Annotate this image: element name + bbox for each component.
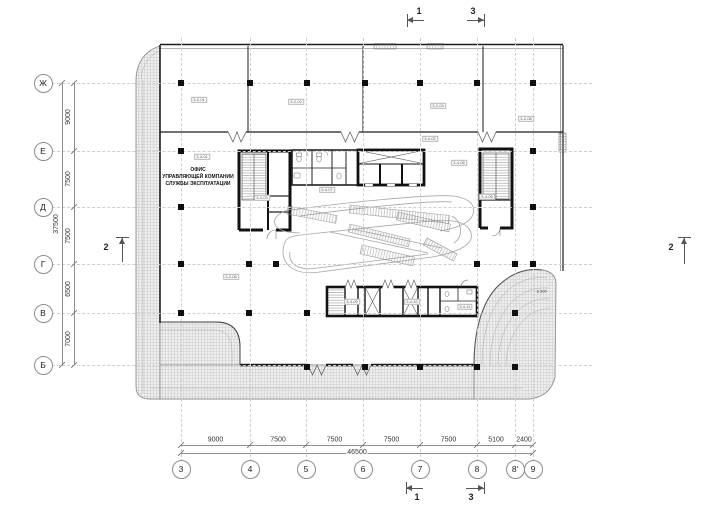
column bbox=[178, 204, 184, 210]
column bbox=[474, 261, 480, 267]
grid-line-col bbox=[181, 38, 182, 462]
dim-value: 7000 bbox=[65, 330, 73, 348]
column bbox=[512, 364, 518, 370]
grid-bubble-row: Ж bbox=[34, 74, 53, 93]
grid-bubble-col: 8 bbox=[468, 460, 487, 479]
dim-value: 9000 bbox=[207, 436, 225, 444]
section-marker-arrow bbox=[478, 485, 484, 491]
column bbox=[247, 80, 253, 86]
dim-value: 9000 bbox=[65, 108, 73, 126]
column bbox=[530, 148, 536, 154]
column bbox=[530, 204, 536, 210]
section-marker-label: 3 bbox=[470, 6, 475, 16]
grid-bubble-row: В bbox=[34, 304, 53, 323]
dim-value: 7500 bbox=[326, 436, 344, 444]
column bbox=[178, 148, 184, 154]
dim-line-bottom bbox=[181, 445, 533, 446]
room-label: 3-4-03 bbox=[254, 195, 270, 201]
grid-line-row bbox=[52, 151, 592, 152]
office-label-line2: УПРАВЛЯЮЩЕЙ КОМПАНИИ bbox=[159, 174, 237, 181]
grid-line-row bbox=[52, 207, 592, 208]
column bbox=[246, 261, 252, 267]
dim-value: 6500 bbox=[65, 280, 73, 298]
dim-value: 7500 bbox=[65, 227, 73, 245]
column bbox=[512, 261, 518, 267]
section-marker-arrow bbox=[478, 17, 484, 23]
section-marker-label: 2 bbox=[103, 242, 108, 252]
elevation-label: -3.300 bbox=[535, 289, 546, 294]
column bbox=[178, 310, 184, 316]
grid-bubble-col: 4 bbox=[241, 460, 260, 479]
column bbox=[246, 310, 252, 316]
grid-line-col bbox=[477, 38, 478, 462]
room-label: 3-4-08 bbox=[451, 160, 467, 166]
grid-line-row bbox=[52, 365, 592, 366]
column bbox=[362, 80, 368, 86]
column bbox=[304, 364, 310, 370]
column bbox=[512, 310, 518, 316]
grid-bubble-col: 9 bbox=[524, 460, 543, 479]
grid-bubble-row: Д bbox=[34, 198, 53, 217]
column bbox=[417, 80, 423, 86]
grid-line-row bbox=[52, 83, 592, 84]
room-label: 3-2-05 bbox=[223, 274, 239, 280]
dim-value: 7500 bbox=[269, 436, 287, 444]
room-label: 3-4-11 bbox=[457, 304, 472, 310]
room-label: 3-2-02 bbox=[288, 99, 304, 105]
section-marker-arrow bbox=[407, 17, 413, 23]
grid-line-col bbox=[515, 38, 516, 462]
office-room-label: ОФИС УПРАВЛЯЮЩЕЙ КОМПАНИИ СЛУЖБЫ ЭКСПЛУА… bbox=[159, 167, 237, 187]
room-label: 3-2-03 bbox=[430, 103, 446, 109]
grid-line-col bbox=[533, 38, 534, 462]
section-marker-label: 1 bbox=[414, 492, 419, 502]
column bbox=[530, 80, 536, 86]
section-marker-label: 1 bbox=[416, 6, 421, 16]
room-label: 3-4-07 bbox=[319, 187, 335, 193]
column bbox=[474, 80, 480, 86]
grid-bubble-col: 7 bbox=[411, 460, 430, 479]
column bbox=[530, 261, 536, 267]
grid-bubble-col: 6 bbox=[354, 460, 373, 479]
grid-bubble-col: 3 bbox=[172, 460, 191, 479]
section-marker-label: 3 bbox=[468, 492, 473, 502]
room-label: 3-4-01 bbox=[194, 154, 210, 160]
room-label: 3-2-08 bbox=[518, 116, 534, 122]
column bbox=[273, 261, 279, 267]
dim-line-left bbox=[74, 83, 75, 365]
annotation-overlay: ЖЕДГВБ3456788'93-2-013-2-023-2-033-2-083… bbox=[0, 0, 720, 509]
dim-value: 7500 bbox=[440, 436, 458, 444]
dim-value: 2400 bbox=[515, 436, 533, 444]
section-marker-arrow bbox=[119, 238, 125, 244]
column bbox=[474, 364, 480, 370]
dim-value: 7500 bbox=[383, 436, 401, 444]
column bbox=[417, 364, 423, 370]
dim-line-left-total bbox=[62, 83, 63, 365]
floor-plan-canvas: ЖЕДГВБ3456788'93-2-013-2-023-2-033-2-083… bbox=[0, 0, 720, 509]
grid-line-col bbox=[250, 38, 251, 462]
office-label-line3: СЛУЖБЫ ЭКСПЛУАТАЦИИ bbox=[159, 181, 237, 188]
office-label-line1: ОФИС bbox=[159, 167, 237, 174]
grid-bubble-row: Е bbox=[34, 142, 53, 161]
dim-total-value: 46500 bbox=[346, 449, 367, 457]
room-label: 3-4-06 bbox=[479, 194, 495, 200]
column bbox=[362, 364, 368, 370]
dim-total-value: 37500 bbox=[53, 213, 61, 234]
dim-value: 5100 bbox=[487, 436, 505, 444]
grid-line-col bbox=[420, 38, 421, 462]
room-label: 3-4-10 bbox=[404, 299, 420, 305]
dim-value: 7500 bbox=[65, 170, 73, 188]
grid-line-row bbox=[52, 313, 592, 314]
column bbox=[304, 80, 310, 86]
column bbox=[178, 261, 184, 267]
grid-bubble-col: 5 bbox=[297, 460, 316, 479]
grid-line-col bbox=[306, 38, 307, 462]
section-marker-tick bbox=[484, 482, 485, 494]
grid-line-row bbox=[52, 264, 592, 265]
room-label: 3-4-09 bbox=[344, 299, 360, 305]
section-marker-arrow bbox=[406, 485, 412, 491]
room-label: 3-4-02 bbox=[422, 136, 438, 142]
grid-bubble-col: 8' bbox=[506, 460, 525, 479]
column bbox=[178, 80, 184, 86]
section-marker-label: 2 bbox=[668, 242, 673, 252]
section-marker-arrow bbox=[681, 238, 687, 244]
column bbox=[304, 310, 310, 316]
grid-bubble-row: Б bbox=[34, 356, 53, 375]
grid-bubble-row: Г bbox=[34, 255, 53, 274]
room-label: 3-2-01 bbox=[191, 97, 207, 103]
section-marker-tick bbox=[484, 14, 485, 27]
grid-line-col bbox=[363, 38, 364, 462]
